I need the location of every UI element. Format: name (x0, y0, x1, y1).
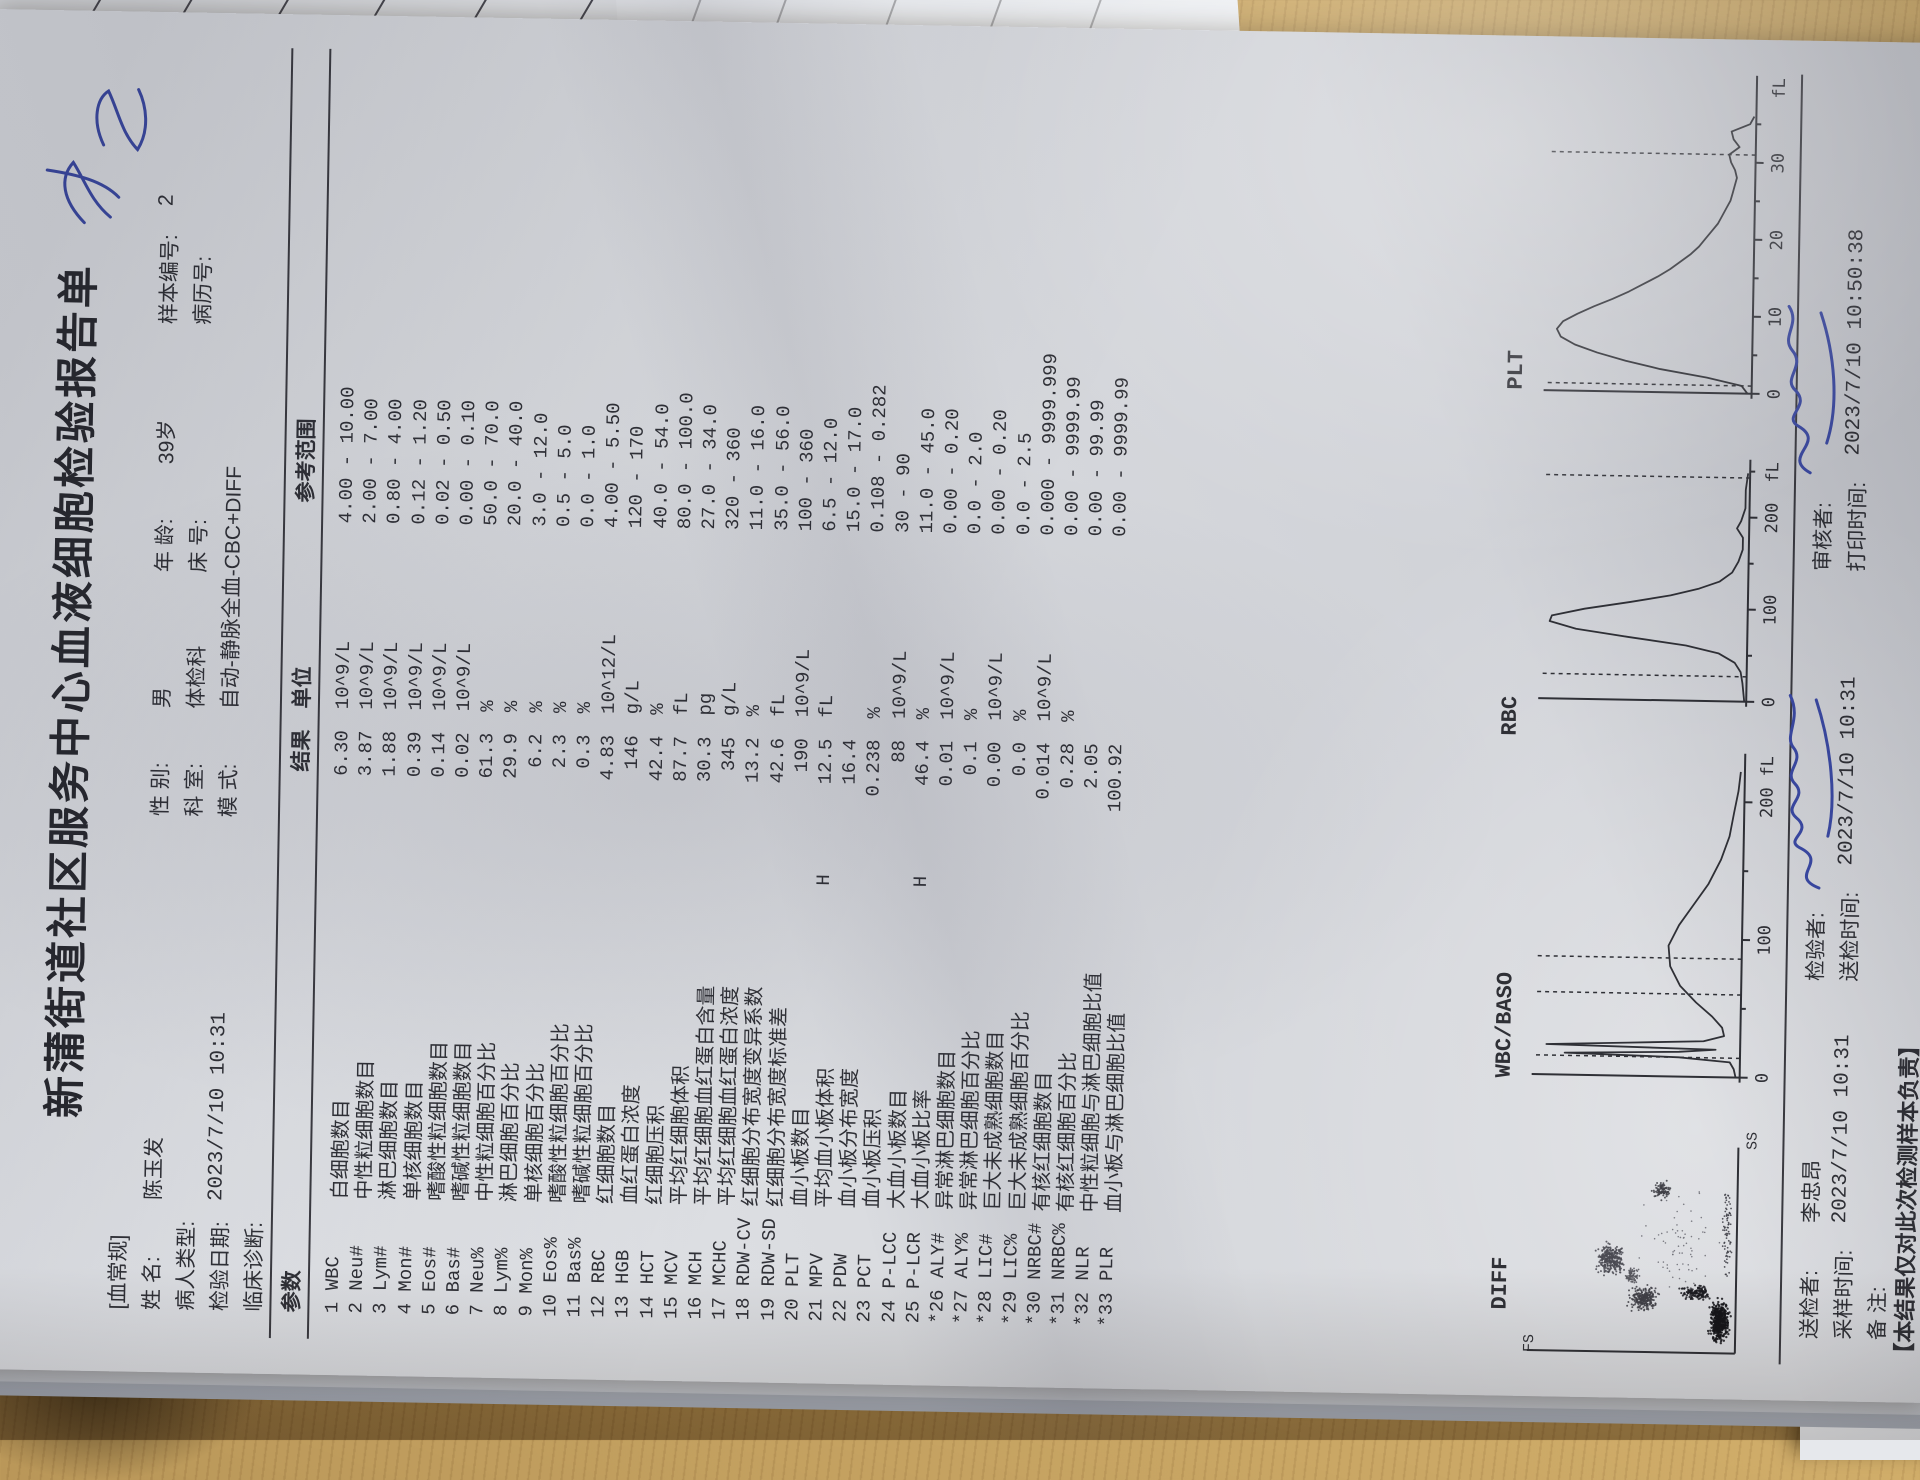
result-unit: pg (695, 693, 717, 716)
wbc-baso-label: WBC/BASO (1492, 972, 1519, 1078)
reference-range: 0.108 - 0.282 (867, 384, 892, 533)
param-code: 8 Lym% (491, 1247, 514, 1316)
rbc-label: RBC (1498, 696, 1524, 736)
reference-range: 0.000 - 9999.999 (1037, 353, 1062, 536)
param-name: 血小板与淋巴细胞比值 (1098, 1013, 1130, 1213)
reference-range: 0.02 - 0.50 (432, 399, 456, 525)
param-code: 20 PLT (781, 1253, 804, 1322)
reference-range: 0.00 - 0.20 (940, 408, 964, 534)
param-code: 11 Bas% (563, 1237, 586, 1317)
result-value: 100.92 (1104, 744, 1128, 849)
reference-range: 0.12 - 1.20 (408, 399, 432, 525)
result-flag: H (910, 876, 932, 888)
param-code: 9 Mon% (515, 1248, 538, 1317)
result-unit: % (646, 703, 668, 715)
reference-range: 80.0 - 100.0 (674, 392, 698, 529)
result-value: 146 (620, 735, 644, 840)
param-code: 7 Neu% (466, 1247, 489, 1316)
reference-range: 15.0 - 17.0 (843, 407, 867, 533)
param-code: 1 WBC (321, 1256, 344, 1313)
result-unit: 10^9/L (356, 641, 379, 710)
param-code: 22 PDW (829, 1253, 852, 1322)
param-code: *26 ALY# (926, 1232, 950, 1324)
tester-signature (1769, 685, 1843, 896)
print-time: 2023/7/10 10:50:38 (1843, 229, 1870, 456)
result-unit: % (550, 701, 572, 713)
param-code: 3 Lym# (370, 1245, 393, 1314)
lab-report-sheet: 新蒲街道社区服务中心血液细胞检验报告单 [血常规] 姓 名: 陈玉发 性 别: … (0, 9, 1920, 1403)
result-value: 42.4 (644, 736, 668, 841)
svg-text:30: 30 (1768, 153, 1788, 174)
result-unit: 10^9/L (985, 652, 1008, 721)
param-code: 25 P-LCR (902, 1232, 926, 1324)
result-value: 87.7 (668, 736, 692, 841)
reference-range: 0.0 - 2.5 (1013, 432, 1037, 535)
result-unit: g/L (622, 680, 645, 715)
diff-label: DIFF (1488, 1256, 1514, 1309)
result-unit: g/L (719, 682, 742, 717)
param-code: 16 MCH (684, 1251, 707, 1320)
result-unit: % (961, 709, 983, 721)
result-value: 0.3 (572, 734, 596, 839)
reference-range: 2.00 - 7.00 (359, 398, 383, 524)
result-unit: 10^9/L (937, 651, 960, 720)
result-value: 345 (717, 737, 741, 842)
reference-range: 30 - 90 (892, 453, 915, 533)
result-unit: 10^9/L (888, 650, 911, 719)
result-value: 0.02 (451, 732, 475, 837)
reference-range: 4.00 - 5.50 (601, 402, 625, 528)
reviewer-label: 审核者: (1806, 502, 1837, 571)
result-unit: % (1009, 709, 1031, 721)
result-value: 0.14 (426, 732, 450, 837)
sampling-time-label: 采样时间: (1827, 1249, 1859, 1339)
result-value: 0.238 (862, 739, 886, 844)
result-flag: H (813, 874, 835, 886)
result-unit: % (743, 705, 765, 717)
param-code: *31 NRBC% (1047, 1223, 1071, 1326)
reference-range: 0.0 - 2.0 (964, 431, 988, 534)
send-time: 2023/7/10 10:31 (1835, 676, 1861, 865)
result-unit: 10^9/L (332, 641, 355, 710)
reference-range: 20.0 - 40.0 (504, 401, 528, 527)
reference-range: 3.0 - 12.0 (529, 412, 553, 526)
sender-label: 送检者: (1793, 1270, 1824, 1339)
param-code: 14 HCT (636, 1250, 659, 1319)
result-value: 0.00 (983, 741, 1007, 846)
sampling-time: 2023/7/10 10:31 (1829, 1034, 1855, 1223)
result-unit: 10^9/L (792, 649, 815, 718)
reference-range: 11.0 - 16.0 (746, 405, 770, 531)
rbc-histogram: 0100200fL (1528, 454, 1782, 710)
svg-text:0: 0 (1753, 1073, 1773, 1084)
result-value: 1.88 (378, 731, 402, 836)
param-code: 10 Eos% (539, 1237, 562, 1317)
param-code: 21 MPV (805, 1253, 828, 1322)
result-value: 0.0 (1007, 742, 1031, 847)
result-value: 6.30 (330, 730, 354, 835)
param-code: *29 LIC% (999, 1234, 1023, 1326)
plt-histogram: 0102030fL (1533, 70, 1789, 402)
reference-range: 0.00 - 99.99 (1085, 399, 1109, 536)
reference-range: 0.00 - 9999.99 (1061, 376, 1086, 536)
svg-text:200: 200 (1762, 502, 1782, 533)
result-unit: 10^12/L (598, 634, 621, 714)
reference-range: 6.5 - 12.0 (819, 417, 843, 531)
tester-label: 检验者: (1799, 912, 1830, 981)
result-unit: % (1058, 710, 1080, 722)
result-unit: 10^9/L (380, 641, 403, 710)
param-code: *30 NRBC# (1023, 1223, 1047, 1326)
result-value: 2.05 (1080, 743, 1104, 848)
result-value: 4.83 (596, 735, 620, 840)
param-code: 19 RDW-SD (757, 1218, 781, 1321)
param-code: *27 ALY% (950, 1233, 974, 1325)
result-unit: % (501, 701, 523, 713)
reference-range: 0.00 - 9999.99 (1109, 377, 1134, 537)
wbc-baso-histogram: 0100200fL (1522, 748, 1778, 1086)
reference-range: 320 - 360 (722, 427, 746, 530)
reference-range: 50.0 - 70.0 (480, 400, 504, 526)
svg-text:fL: fL (1770, 78, 1789, 99)
send-time-label: 送检时间: (1833, 891, 1865, 981)
result-value: 6.2 (523, 733, 547, 838)
param-code: *32 NLR (1071, 1246, 1094, 1326)
result-unit: 10^9/L (429, 642, 452, 711)
result-value: 61.3 (475, 733, 499, 838)
param-code: 12 RBC (587, 1249, 610, 1318)
result-unit: 10^9/L (1034, 653, 1057, 722)
param-code: *28 LIC# (975, 1233, 999, 1325)
plt-label: PLT (1504, 350, 1530, 390)
param-code: 17 MCHC (708, 1240, 731, 1320)
result-unit: % (913, 708, 935, 720)
param-code: 13 HGB (612, 1250, 635, 1319)
param-code: 18 RDW-CV (733, 1218, 757, 1321)
svg-text:100: 100 (1761, 595, 1782, 626)
param-code: 24 P-LCC (878, 1231, 902, 1323)
reference-range: 0.80 - 4.00 (383, 399, 407, 525)
reference-range: 0.00 - 0.10 (456, 400, 480, 526)
result-unit: fL (816, 695, 838, 718)
reviewer-signature (1770, 297, 1848, 483)
param-code: 4 Mon# (394, 1246, 417, 1315)
result-unit: % (525, 701, 547, 713)
param-code: 23 PCT (854, 1254, 877, 1323)
result-unit: % (574, 702, 596, 714)
param-code: 5 Eos# (418, 1246, 441, 1315)
disclaimer-text: 【本结果仅对此次检测样本负责】 (1887, 1034, 1920, 1365)
reference-range: 27.0 - 34.0 (698, 404, 722, 530)
result-unit: fL (671, 692, 693, 715)
param-code: 2 Neu# (345, 1245, 368, 1314)
reference-range: 0.5 - 5.0 (553, 424, 577, 527)
result-value: 42.6 (765, 738, 789, 843)
result-value: 46.4 (910, 740, 934, 845)
result-value: 29.9 (499, 733, 523, 838)
result-value: 30.3 (693, 736, 717, 841)
reference-range: 35.0 - 56.0 (771, 405, 795, 531)
result-value: 0.014 (1031, 742, 1055, 847)
result-value: 0.1 (959, 741, 983, 846)
result-value: 88 (886, 740, 910, 845)
result-value: 0.39 (402, 731, 426, 836)
diff-scattergram (1517, 1140, 1771, 1362)
svg-text:20: 20 (1767, 230, 1787, 251)
result-value: 0.28 (1056, 743, 1080, 848)
result-value: 2.3 (547, 734, 571, 839)
param-code: *33 PLR (1096, 1247, 1119, 1327)
reference-range: 0.00 - 0.20 (988, 409, 1012, 535)
result-unit: fL (767, 694, 789, 717)
result-value: 12.5 (814, 738, 838, 843)
result-value: 3.87 (354, 730, 378, 835)
reference-range: 11.0 - 45.0 (916, 408, 940, 534)
result-value: 16.4 (838, 739, 862, 844)
result-value: 190 (789, 738, 813, 843)
result-value: 0.01 (935, 741, 959, 846)
svg-text:100: 100 (1755, 925, 1776, 956)
result-value: 13.2 (741, 737, 765, 842)
ss-axis-label: SS (1744, 1132, 1761, 1150)
reference-range: 120 - 170 (625, 426, 649, 529)
reference-range: 0.0 - 1.0 (577, 425, 601, 528)
result-unit: 10^9/L (404, 642, 427, 711)
param-code: 15 MCV (660, 1250, 683, 1319)
sender-name: 李忠昂 (1795, 1160, 1826, 1224)
reference-range: 100 - 360 (795, 428, 819, 531)
result-unit: 10^9/L (453, 643, 476, 712)
reference-range: 40.0 - 54.0 (650, 403, 674, 529)
reference-range: 4.00 - 10.00 (335, 386, 359, 523)
result-unit: % (477, 700, 499, 712)
result-unit: % (864, 707, 886, 719)
param-code: 6 Bas# (442, 1247, 465, 1316)
print-time-label: 打印时间: (1840, 482, 1872, 572)
